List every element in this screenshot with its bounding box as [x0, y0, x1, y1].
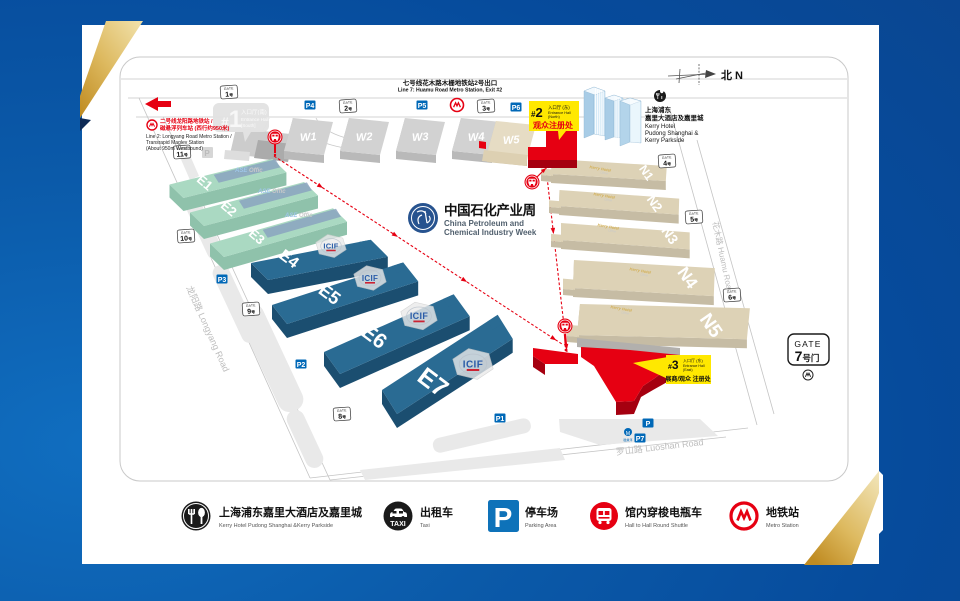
svg-text:入口厅 (东): 入口厅 (东): [548, 104, 570, 110]
svg-text:上海浦东嘉里大酒店及嘉里城: 上海浦东嘉里大酒店及嘉里城: [219, 505, 362, 519]
svg-text:ICIF: ICIF: [463, 360, 483, 371]
svg-text:Chemical Industry Week: Chemical Industry Week: [444, 228, 537, 237]
svg-text:展商/观众 注册处: 展商/观众 注册处: [665, 375, 711, 383]
svg-text:M: M: [626, 431, 630, 437]
svg-text:二号线龙阳路地铁站 /: 二号线龙阳路地铁站 /: [160, 117, 213, 125]
svg-text:ICIF: ICIF: [410, 311, 429, 321]
svg-text:GATE: GATE: [343, 100, 354, 105]
svg-text:P1: P1: [496, 416, 505, 423]
svg-text:磁悬浮列车站 (西行约950米): 磁悬浮列车站 (西行约950米): [160, 124, 230, 132]
svg-text:七号线花木路木栅地铁站2号出口: 七号线花木路木栅地铁站2号出口: [403, 78, 498, 87]
svg-text:China Petroleum and: China Petroleum and: [444, 219, 524, 228]
svg-text:ASE Offic: ASE Offic: [284, 213, 313, 219]
svg-text:W2: W2: [356, 131, 373, 144]
svg-text:GATE: GATE: [689, 211, 700, 216]
svg-text:Parking Area: Parking Area: [525, 523, 557, 529]
svg-text:(East): (East): [683, 368, 693, 372]
svg-text:ICIF: ICIF: [362, 274, 378, 283]
svg-text:中国石化产业周: 中国石化产业周: [444, 202, 536, 218]
svg-text:地铁站: 地铁站: [766, 505, 799, 519]
svg-text:P6: P6: [512, 105, 521, 112]
svg-text:P5: P5: [418, 103, 427, 110]
svg-text:Kerry Hotel: Kerry Hotel: [645, 124, 675, 130]
svg-text:嘉里大酒店及嘉里城: 嘉里大酒店及嘉里城: [644, 113, 704, 122]
svg-text:GATE: GATE: [662, 155, 673, 160]
svg-text:GATE: GATE: [337, 408, 348, 413]
svg-text:磁悬浮: 磁悬浮: [623, 437, 632, 442]
svg-text:Metro Station: Metro Station: [766, 523, 799, 529]
svg-text:北 N: 北 N: [721, 68, 743, 82]
svg-text:ICIF: ICIF: [323, 242, 338, 251]
svg-text:馆内穿梭电瓶车: 馆内穿梭电瓶车: [625, 505, 702, 519]
svg-text:GATE: GATE: [181, 230, 192, 235]
svg-text:P: P: [204, 149, 210, 158]
svg-text:观众注册处: 观众注册处: [533, 120, 574, 130]
svg-text:入口厅(南): 入口厅(南): [241, 108, 267, 116]
svg-text:ASE Offic: ASE Offic: [257, 189, 286, 195]
svg-text:[South]: [South]: [241, 123, 256, 128]
svg-text:P3: P3: [218, 277, 227, 284]
svg-text:(North): (North): [548, 115, 561, 119]
svg-text:Kerry Parkside: Kerry Parkside: [645, 138, 685, 144]
svg-text:Taxi: Taxi: [420, 523, 430, 529]
svg-text:Line 7: Huamu Road Metro Stati: Line 7: Huamu Road Metro Station, Exit #…: [398, 88, 502, 94]
svg-text:P4: P4: [306, 103, 315, 110]
svg-text:P: P: [646, 421, 651, 428]
svg-text:GATE: GATE: [481, 100, 492, 105]
svg-text:P2: P2: [297, 362, 306, 369]
svg-text:W1: W1: [300, 131, 317, 144]
svg-text:TAXI: TAXI: [390, 521, 405, 528]
svg-text:W3: W3: [412, 131, 429, 144]
svg-text:GATE: GATE: [224, 86, 235, 91]
svg-text:W5: W5: [503, 134, 521, 147]
svg-text:Kerry Hotel Pudong Shanghai &K: Kerry Hotel Pudong Shanghai &Kerry Parks…: [219, 523, 333, 529]
svg-text:ASE Offic: ASE Offic: [234, 168, 263, 174]
svg-text:Hall to Hall Round Shuttle: Hall to Hall Round Shuttle: [625, 523, 688, 529]
svg-text:上海浦东: 上海浦东: [645, 105, 672, 114]
svg-text:入口厅 (东): 入口厅 (东): [683, 357, 703, 363]
svg-text:Entrance Hall: Entrance Hall: [241, 117, 269, 122]
svg-text:(About 950m Westbound): (About 950m Westbound): [146, 146, 203, 152]
svg-text:GATE: GATE: [246, 303, 257, 308]
svg-text:出租车: 出租车: [420, 505, 453, 519]
svg-text:停车场: 停车场: [525, 505, 558, 519]
svg-text:P: P: [494, 502, 513, 533]
svg-text:Pudong Shanghai &: Pudong Shanghai &: [645, 131, 698, 137]
svg-text:P7: P7: [636, 436, 645, 443]
